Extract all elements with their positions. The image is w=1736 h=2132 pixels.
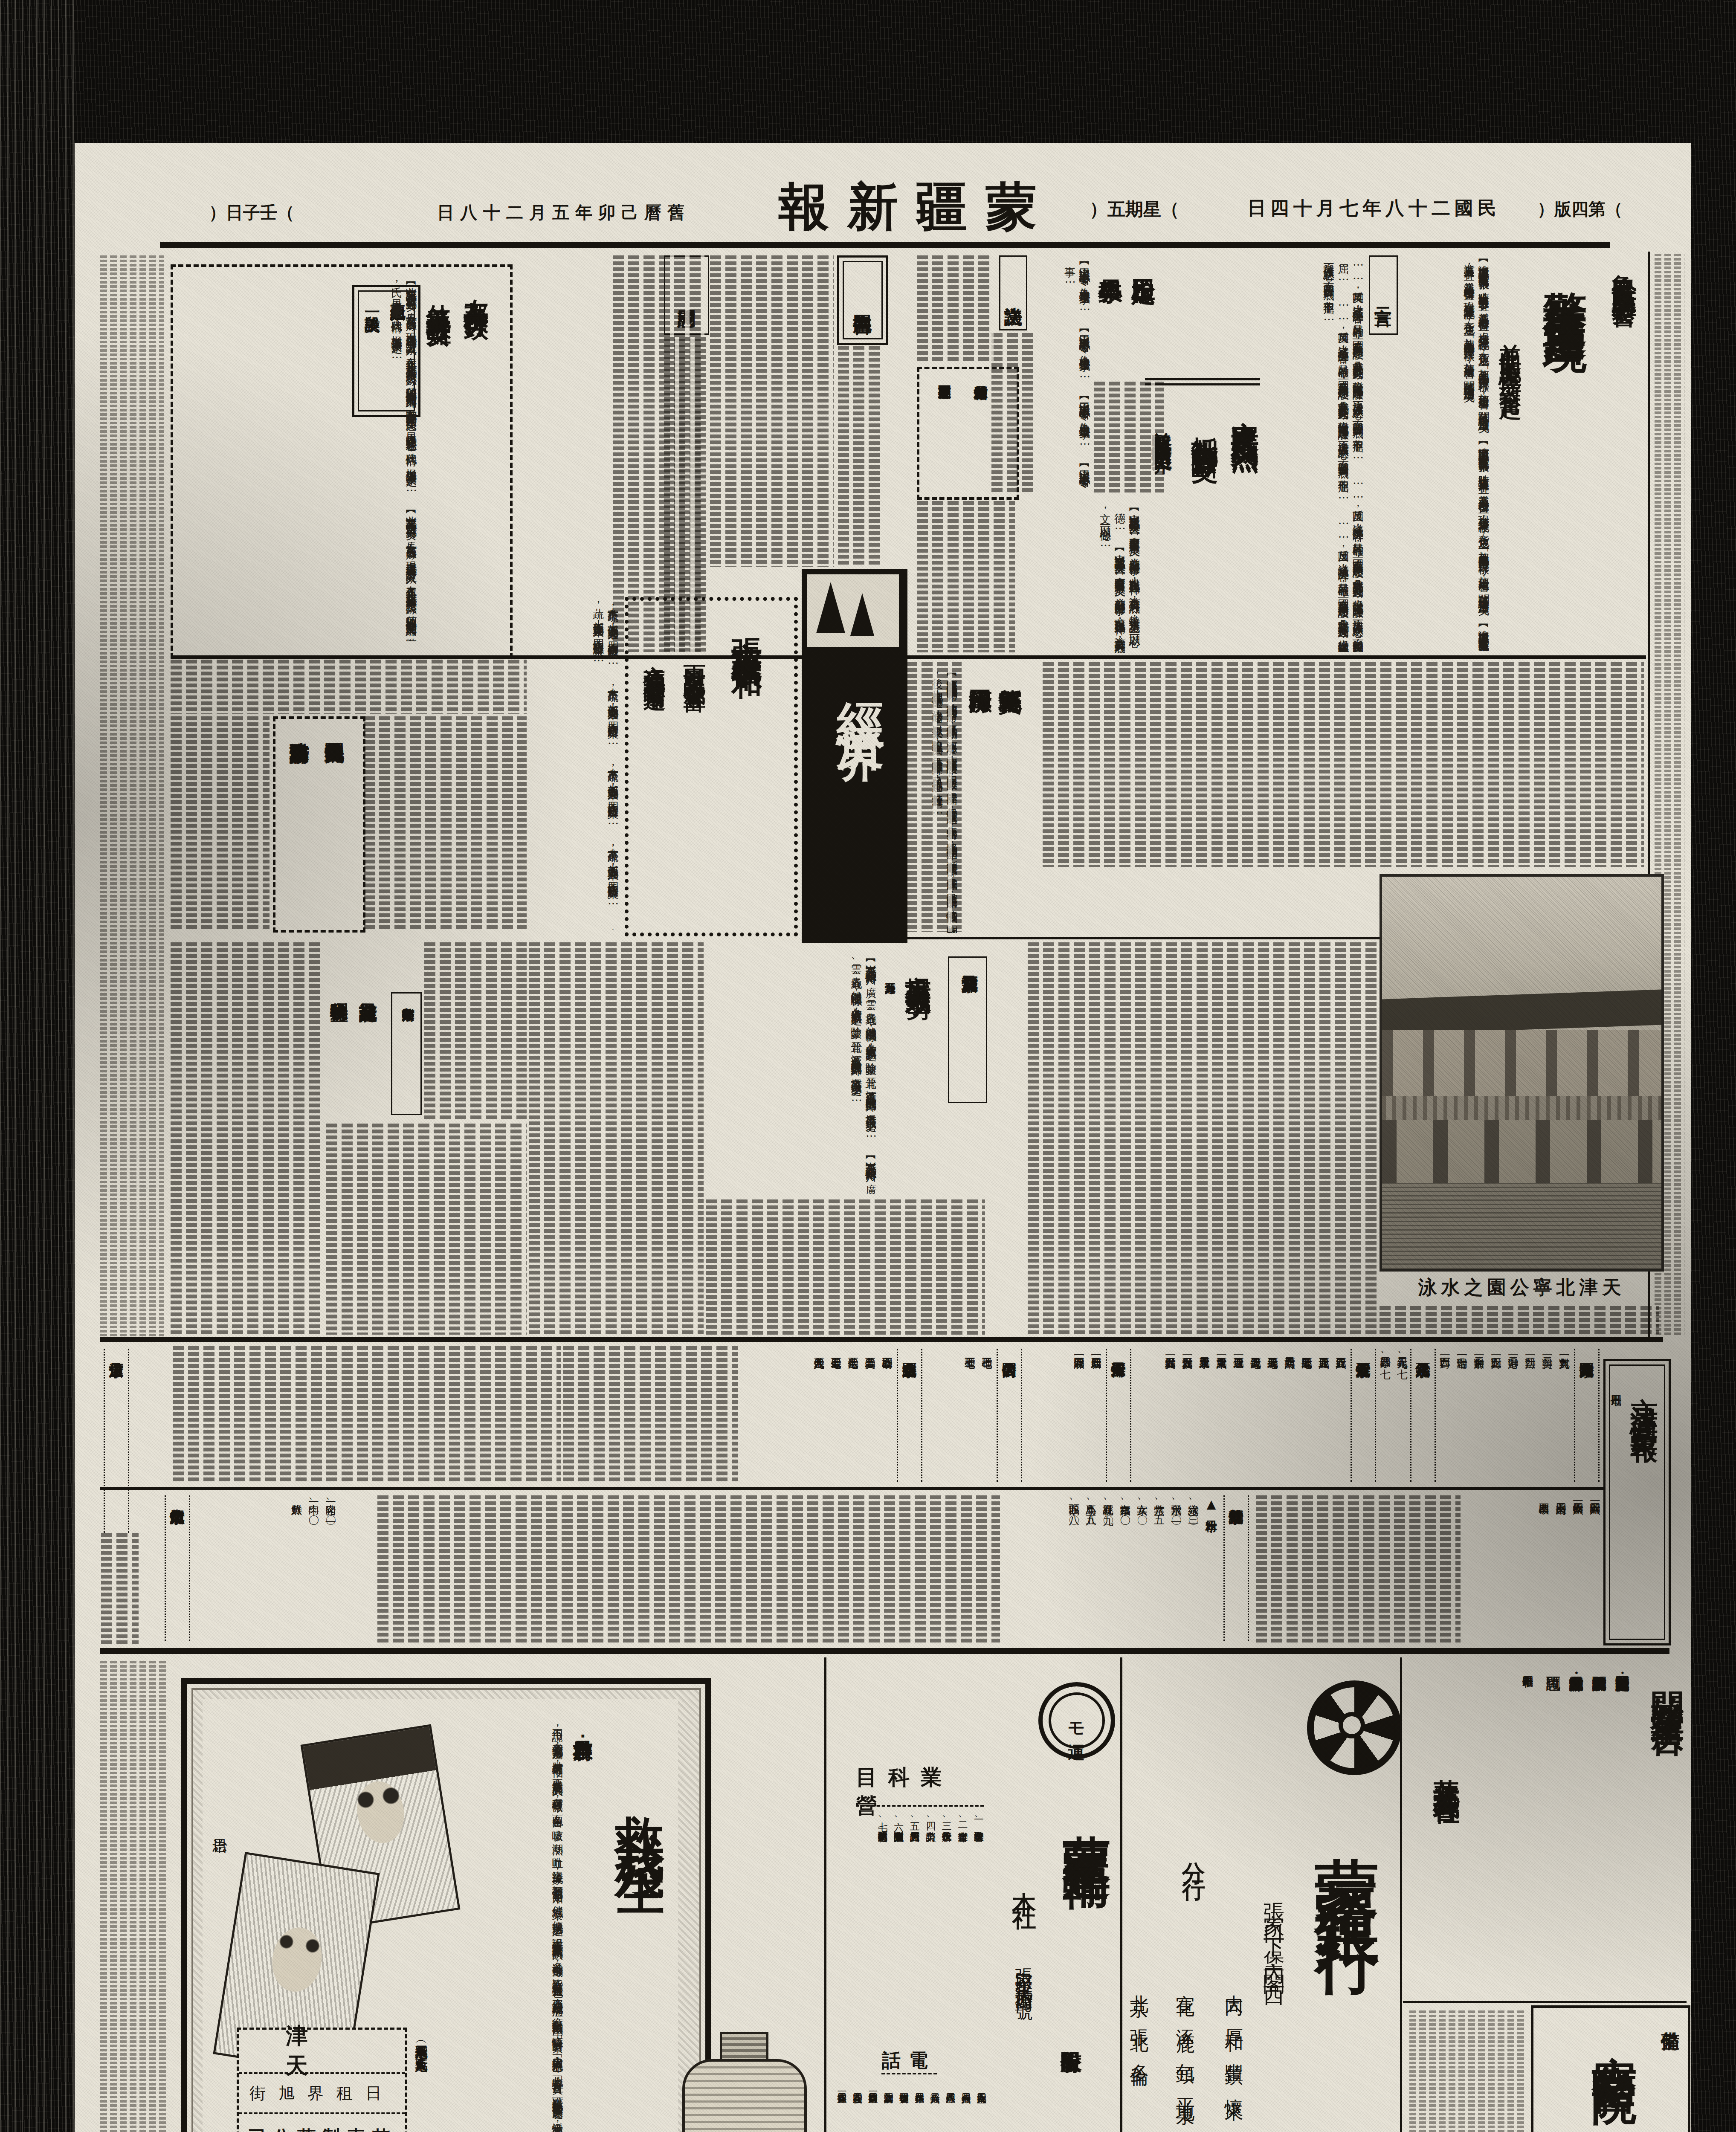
lead-headline: 警告英僑迅速出境 <box>1536 257 1595 654</box>
friendly-article-box: 友邦人士俠行可欽 仗義挺身救出難女 興亞紀念中 一段美談 【北京訊】元者年逾六十… <box>171 264 513 658</box>
phone-row: 發著貨物係三三四四 <box>898 2086 910 2132</box>
hospital-note-1: 整備 <box>1658 2017 1683 2073</box>
fx-row: 對法三〇一 <box>1524 1350 1536 1480</box>
flour-entries: 綠字六、三〇 飛字六、二〇 竹字六、一五 女字六、一〇 白福字六、〇〇 紅桃花五… <box>1063 1496 1200 1640</box>
misc-top-columns-1 <box>917 255 994 362</box>
tax-headline-1: 國稅並無免費先例 <box>322 727 348 919</box>
bj-stocks-title: 北京股票行情 <box>1351 1349 1376 1482</box>
fx-entries: 對英一一九六 對美二〇一 對法三〇一 對港二〇一〇 對比一〇五 對加拿大二一〇 … <box>1434 1350 1571 1480</box>
silver-table: 北京銀元鈔票 銀元二三九、七 鈔票二三四、七 <box>1380 1346 1437 1483</box>
hospital-ad: 整備 各科 察南醫院 郊北府政治自南察 <box>1531 2005 1690 2132</box>
mid-right-columns <box>1043 662 1644 867</box>
zhang-headline-box: 張市菜蔬售價平和 雨量充足收成豐富 交通便利京貨暢運 <box>625 597 798 936</box>
stock-row: 城股票五六元 <box>1317 1350 1330 1480</box>
masthead-cyclical-day: ）日子壬（ <box>209 201 316 224</box>
stock-row: 行股票五六元 <box>1334 1350 1347 1480</box>
business-item: 二、倉庫營業 <box>957 1814 969 2019</box>
tax-headline-box: 國稅並無免費先例 京財政部咨請查辦 <box>273 716 365 933</box>
paper-title: 報新疆蒙 <box>778 173 1068 242</box>
shipping-office-address: 張家口宣化大道街四一號 <box>1012 1954 1036 2132</box>
gold-price-values <box>101 1533 139 1644</box>
tu-headline-box: 涂縣長等相偕赴津 慰問皇軍並聲援反英 <box>917 367 1019 500</box>
fish-entries: 豬肉一、二〇 牛肉一、〇〇 鮮魚八〇 <box>286 1496 337 1640</box>
medicine-ad-box: 救我殘生 肺癆救星： 不用說，我們大家都知道，肺病是何等可怕，要知道患肺癆的人，… <box>181 1678 711 2132</box>
shipping-name-mid: 股份有限 <box>1057 2035 1086 2095</box>
bj-stocks-entries: 行股票五六元 城股票五六元 陸股票五七元 南股票六二元 絲股票五七元 鐵股票七九… <box>1159 1350 1347 1480</box>
transport-ad-line-1: 茲自七月三日起開始隴海路阿湖・新安間之旅客 <box>1613 1665 1632 1998</box>
commerce-label-box: 京津商象繁榮 <box>391 992 422 1115</box>
phone-row: 夜間宿直二八四〇 <box>852 2086 863 2132</box>
tu-headline-1: 涂縣長等相偕赴津 <box>971 375 990 490</box>
bank-branches-2: 宣化 涿鹿 包頭 平地泉 <box>1173 1980 1198 2132</box>
business-item: 四、勞力請負 <box>925 1814 937 2019</box>
fx-row: 對巴西三三一 <box>1438 1350 1451 1480</box>
fx-row: 對加拿大二一〇 <box>1472 1350 1485 1480</box>
bank-logo-core <box>1339 1712 1365 1738</box>
fx-table-title: 京津外國匯兌 <box>1574 1349 1600 1482</box>
yutian-headline-1: 玉田檢定 <box>1128 261 1160 371</box>
phone-row: 業務係二八四四 <box>914 2086 925 2132</box>
shipping-phone-header: 話電 <box>881 2048 937 2074</box>
transport-ad: 開始營業廣告 茲自七月三日起開始隴海路阿湖・新安間之旅客 行李包裹及貨物運送營業… <box>1403 1656 1687 2001</box>
letter-body-3 <box>838 346 884 565</box>
friendly-body: 【北京訊】元者年逾六十一歲行二男三女，長女次女各已出嫁，現在老夫婦與二男二女計一… <box>180 278 419 641</box>
bottom-left-margin-text <box>100 1661 168 2132</box>
flour-row: 白福字六、〇〇 <box>1119 1496 1131 1640</box>
stock-row: 鐵股票七九元 <box>1249 1350 1262 1480</box>
economy-box-title: 經濟界 <box>829 665 893 921</box>
letter-label: 告同胞書 <box>837 255 888 345</box>
bullion-row: 破票四兩三 <box>1537 1495 1550 1642</box>
ads-divider-2 <box>1120 1657 1122 2132</box>
market-band-top-rule <box>100 1337 1663 1342</box>
pine-tree-icon <box>816 582 845 633</box>
bullion-row: 收盤二兩一四六 <box>1571 1495 1584 1642</box>
baodi-headline-2: 箭桿河險工 <box>965 672 996 812</box>
hospital-ad-side-text <box>1409 2010 1524 2132</box>
flour-title: 北京麵粉行情 <box>1223 1495 1249 1641</box>
medicine-body: 不用說，我們大家都知道，肺病是何等可怕，要知道患肺癆的人，有種種徵微，面色蒼白，… <box>450 1721 565 2132</box>
bank-branch-label: 分行 <box>1178 1843 1209 1937</box>
bottle-body <box>682 2059 807 2132</box>
transport-ad-line-2: 行李包裹及貨物運送營業關於詳細請向本社 <box>1590 1665 1609 1998</box>
gold-row: 金磅四五五〇 <box>881 1350 893 1480</box>
gold-row: 俄金票六九六〇 <box>812 1350 825 1480</box>
hospital-name: 察南醫院 <box>1585 2019 1646 2132</box>
photo-grain <box>1382 877 1661 1269</box>
fish-meat-title: 北京魚肉行情 <box>165 1495 190 1641</box>
stock-row: 陸股票五七元 <box>1300 1350 1313 1480</box>
phone-row: 支配人室二九四〇 <box>976 2086 987 2132</box>
newspaper-page: ）版四第（ 日四十月七年八十二國民 ）五期星（ 報新疆蒙 日八十二月五年卯己曆舊… <box>75 143 1691 2132</box>
fx-table: 京津外國匯兌 對英一一九六 對美二〇一 對法三〇一 對港二〇一〇 對比一〇五 對… <box>1439 1346 1601 1483</box>
tj-stocks-table: 天津股票行情 啟新股票一一〇元 開灤股票一三一元 <box>1026 1346 1133 1483</box>
gold-row: 日金票七五〇 <box>829 1350 842 1480</box>
flour-row: 飛字六、二〇 <box>1170 1496 1182 1640</box>
silver-table-title: 北京銀元鈔票 <box>1410 1349 1436 1482</box>
below-photo-text <box>1380 1306 1659 1335</box>
pine-tree-icon <box>850 593 874 636</box>
commerce-body-2 <box>326 1124 527 1335</box>
tj-stocks-title: 天津股票行情 <box>1106 1349 1131 1482</box>
silver-row: 鈔票二三四、七 <box>1379 1350 1391 1480</box>
resolution-label: 決議文 <box>999 255 1027 330</box>
market-band-bottom-rule <box>100 1648 1669 1654</box>
flour-row: 小鳥五、八五 <box>1084 1496 1097 1640</box>
gold-notes-table: 北京各國金票 金磅四五五〇 美金票五〇〇 法金票七三〇 日金票七五〇 俄金票六九… <box>741 1346 924 1483</box>
commerce-label: 京津商象繁榮 <box>399 998 417 1109</box>
anci-headline-1: 安次民眾反英熱烈 <box>1226 399 1264 655</box>
bonds-title: 中國國內公債 <box>997 1349 1022 1482</box>
misc-body-continued <box>706 1199 985 1335</box>
declaration-body: ……反英國，遂結成了反英陣容，其目的確立，國家東亞新秩序的建設，凡我東亞民眾反英… <box>1266 255 1365 652</box>
fx-row: 對美二〇一 <box>1541 1350 1553 1480</box>
shipping-business-items: 一、運送及運送取扱營業 二、倉庫營業 三、代辦及保管行李 四、勞力請負 五、需品… <box>854 1814 985 2019</box>
tu-headline-2: 慰問皇軍並聲援反英 <box>936 375 953 490</box>
business-item: 六、金融通融直接運送關係貨物資買賣 <box>893 1814 904 2019</box>
flour-subtitle: ▲日本粉 <box>1203 1497 1219 1604</box>
photo-caption: 泳水之園公寧北津天 <box>1380 1272 1664 1303</box>
stock-row: 緞支付券一〇〇五元 <box>1164 1350 1177 1480</box>
bond-row: 乙種七三〇 <box>980 1350 993 1480</box>
market-band-mid-rule <box>100 1487 1606 1490</box>
transport-ad-line-3: 部旅客課・貨物課・最近鐵路局營業處或最近站 <box>1567 1665 1586 1998</box>
flour-row: 紅桃花五、九〇 <box>1101 1496 1114 1640</box>
phone-row: 街間扱乘直二八四一 <box>867 2086 878 2132</box>
transport-ad-line-4: 訊問可也 <box>1544 1665 1563 1836</box>
lead-kicker: 魯全民反英防共委會 <box>1608 255 1641 536</box>
zhang-body: 本市菜蔬，大部係由北京運來，四季均有應時鮮菜…… 本市菜蔬，大部係由北京運來，四… <box>529 599 620 930</box>
scan-left-scratches <box>0 0 75 2132</box>
stock-row: 東股票六一元 <box>1215 1350 1228 1480</box>
bullion-entries: 開盤二兩一三六 收盤二兩一四六 出來高二四兩〇二 破票四兩三 <box>1469 1495 1601 1642</box>
newspaper-scan: ）版四第（ 日四十月七年八十二國民 ）五期星（ 報新疆蒙 日八十二月五年卯己曆舊… <box>0 0 1736 2132</box>
commerce-body <box>171 942 324 1335</box>
phone-row: 經理係二八八四 <box>945 2086 956 2132</box>
shipping-name-main: 蒙疆運輸 <box>1055 1796 1120 2035</box>
market-row2-extra-left <box>377 1495 1000 1642</box>
tax-headline-2: 京財政部咨請查辦 <box>287 727 313 919</box>
shipping-ad: モ運 蒙疆運輸 股份有限 公司 本社 張家口宣化大道街四一號 電略マル 目科業營… <box>826 1656 1120 2132</box>
bank-name: 蒙疆銀行 <box>1305 1806 1391 2132</box>
phone-row: 當直搬運係一二八四 <box>836 2086 847 2132</box>
flour-row: 鵝頭五、八〇 <box>1067 1496 1080 1640</box>
bj-stocks-table: 北京股票行情 行股票五六元 城股票五六元 陸股票五七元 南股票六二元 絲股票五七… <box>1136 1346 1378 1483</box>
stock-row: 漢支付券一〇五元 <box>1181 1350 1194 1480</box>
fish-meat-table: 豬肉一、二〇 牛肉一、〇〇 鮮魚八〇 北京魚肉行情 <box>162 1493 375 1643</box>
lead-subhead: 並促同胞覺悟一致奮起 <box>1495 326 1525 652</box>
anci-body: 【安次通訊】本縣興亞反英大會，會分區召集民眾一致反英，並分別舉辦週間行事，藉以表… <box>1042 504 1142 653</box>
medicine-signature: 思诒 <box>210 1827 230 1874</box>
flour-row: 綠字六、三〇 <box>1187 1496 1200 1640</box>
friendly-headline-2: 仗義挺身救出難女 <box>422 285 455 524</box>
lead-body: 【濟南通訊】濟全市民眾反英空氣異常緊張，時論促進反英力量事宜，並派員分十組出發宣… <box>1401 255 1491 651</box>
misc-note: 黃葉每斤漲達五角 <box>883 974 898 1111</box>
gold-notes-entries: 金磅四五五〇 美金票五〇〇 法金票七三〇 日金票七五〇 俄金票六九六〇 <box>808 1350 893 1480</box>
zhang-headline: 張市菜蔬售價平和 <box>727 614 768 912</box>
bank-logo-icon <box>1307 1680 1402 1775</box>
bank-branches-3: 北京 張北 多倫 <box>1127 1980 1152 2132</box>
declaration-label: 宣言二 <box>1369 255 1398 335</box>
maker-city: 津天 <box>239 2030 405 2072</box>
gold-row: 美金票五〇〇 <box>864 1350 876 1480</box>
shipping-office-label: 本社 <box>1009 1873 1041 1941</box>
friendly-headline-1: 友邦人士俠行可欽 <box>460 280 493 519</box>
flour-row: 竹字六、一五 <box>1153 1496 1165 1640</box>
market-row1-extra-2 <box>173 1346 561 1483</box>
tax-body-2 <box>171 716 270 930</box>
yutian-body: 【玉田通訊】本縣公署令，為檢定小學教員事…… 【玉田通訊】本縣公署令，為檢定小學… <box>1042 258 1092 490</box>
commerce-body-3 <box>424 942 527 1121</box>
bank-branches-1: 大同 厚和 豐鎮 懷來 <box>1222 1980 1247 2132</box>
yutian-headline-2: 小學教員 <box>1095 261 1127 371</box>
stock-row: 南股票六二元 <box>1283 1350 1296 1480</box>
business-item: 三、代辦及保管行李 <box>941 1814 953 2019</box>
shipping-logo-text: モ運 <box>1065 1711 1089 1730</box>
misc-body: 【京訊】北京雜貨來源向恃川、廣、雲、貴各地，然以運輸關係，各處貨源漸感缺乏，除蒙… <box>706 955 878 1194</box>
bank-head-office: 張家口下堡內閣西 <box>1260 1886 1289 2132</box>
tj-stocks-entries: 啟新股票一一〇元 開灤股票一三一元 <box>1068 1350 1102 1480</box>
stock-row: 燈股票一五元 <box>1232 1350 1245 1480</box>
silver-row: 銀元二三九、七 <box>1396 1350 1409 1480</box>
shipping-phones: 支配人室二九四〇 庶務係二八六四 經理係二八八四 運輸係二八六八 業務係二八四四… <box>834 2086 987 2132</box>
medicine-bottle-illustration: 若素 <box>669 2032 814 2132</box>
shipping-name-tail: 公司 <box>1055 2095 1120 2132</box>
bullion-row: 出來高二四兩〇二 <box>1554 1495 1567 1642</box>
phone-row: 到著貨物所三三三八 <box>883 2086 894 2132</box>
tax-body-3 <box>364 716 527 930</box>
flour-table: 北京麵粉行情 ▲日本粉 綠字六、三〇 飛字六、二〇 竹字六、一五 女字六、一〇 … <box>1004 1493 1251 1643</box>
misc-label-box: 北京雜貨價又漲 <box>948 956 987 1103</box>
news-photo <box>1380 874 1664 1272</box>
business-item: 一、運送及運送取扱營業 <box>973 1814 985 2019</box>
masthead: ）版四第（ 日四十月七年八十二國民 ）五期星（ 報新疆蒙 日八十二月五年卯己曆舊… <box>75 143 1691 249</box>
bullion-row: 開盤二兩一三六 <box>1588 1495 1601 1642</box>
left-margin-text <box>100 255 164 1336</box>
gold-price-title: 京津足金市價 <box>104 1349 129 1533</box>
masthead-date: 日四十月七年八十二國民 <box>1247 196 1529 221</box>
fish-row: 鮮魚八〇 <box>290 1496 303 1640</box>
mid-columns-2 <box>906 662 962 932</box>
medicine-title: 救我殘生 <box>608 1776 674 2040</box>
business-item: 七、附屬前項之一切業務 <box>877 1814 889 2019</box>
market-report-title: 京津商情彙報 <box>1626 1376 1663 1631</box>
yutian-body-continued <box>1094 382 1164 492</box>
gold-notes-title: 北京各國金票 <box>897 1349 922 1482</box>
bond-row: 丁種七五〇 <box>963 1350 976 1480</box>
bonds-table: 中國國內公債 乙種七三〇 丁種七五〇 <box>927 1346 1024 1483</box>
masthead-edition: ）版四第（ <box>1537 197 1640 221</box>
section-rule-1 <box>171 655 1646 659</box>
transport-ad-date: 昭和十四年七月十日 <box>1521 1668 1536 1813</box>
misc-headline: 市場呈供不敷求勢 <box>901 955 936 1188</box>
bank-ad: 蒙疆銀行 張家口下堡內閣西 分行 大同 厚和 豐鎮 懷來 宣化 涿鹿 包頭 平地… <box>1123 1656 1399 2132</box>
fx-row: 對英一一九六 <box>1558 1350 1571 1480</box>
shipping-name-column: 蒙疆運輸 股份有限 公司 <box>1048 1796 1112 2132</box>
anci-deco-rule-1 <box>1145 378 1260 380</box>
medicine-ad-inner: 救我殘生 肺癆救星： 不用說，我們大家都知道，肺病是何等可怕，要知道患肺癆的人，… <box>203 1699 678 2132</box>
transport-ad-title: 開始營業廣告 <box>1645 1665 1690 1964</box>
zhang-subhead-1: 雨量充足收成豐富 <box>680 648 710 912</box>
fish-row: 牛肉一、〇〇 <box>307 1496 320 1640</box>
stock-row: 開灤股票一三一元 <box>1072 1350 1085 1480</box>
gold-row: 法金票七三〇 <box>846 1350 859 1480</box>
stock-row: 啟新股票一一〇元 <box>1090 1350 1102 1480</box>
business-item: 五、需品託力保管資買 <box>909 1814 921 2019</box>
phone-row: 運輸係二八六八 <box>929 2086 940 2132</box>
tu-body <box>917 501 1015 652</box>
fx-row: 對港二〇一〇 <box>1507 1350 1519 1480</box>
baodi-headline-1: 寶坻縣修築 <box>995 672 1026 812</box>
medicine-kicker: 肺癆救星： <box>570 1725 597 1904</box>
tax-body <box>171 660 527 714</box>
economy-section-box: 經濟界 <box>802 569 907 943</box>
phone-row: 庶務係二八六四 <box>960 2086 971 2132</box>
letter-body <box>710 255 834 567</box>
market-row2-extra-right <box>1256 1495 1461 1642</box>
masthead-weekday: ）五期星（ <box>1090 197 1209 221</box>
market-report-title-box: 京津商情彙報 七月十四日 <box>1603 1359 1671 1645</box>
mid-band-columns-right <box>1028 942 1377 1335</box>
transport-ad-signature: 華北交通株式會社 <box>1429 1758 1464 1997</box>
medicine-maker-box: 津天 街旭界租日 司公藥製素若 <box>237 2028 407 2132</box>
maker-company: 司公藥製素若 <box>239 2112 405 2132</box>
silver-entries: 銀元二三九、七 鈔票二三四、七 <box>1374 1350 1409 1480</box>
bonds-entries: 乙種七三〇 丁種七五〇 <box>959 1350 993 1480</box>
stock-row: 來水股票二五元 <box>1198 1350 1211 1480</box>
fx-row: 對瑞士一〇一 <box>1455 1350 1468 1480</box>
shipping-business-header: 目科業營 <box>856 1779 984 1807</box>
shipping-logo-icon: モ運 <box>1038 1682 1115 1759</box>
fish-row: 豬肉一、二〇 <box>324 1496 337 1640</box>
market-row1-extra <box>563 1346 738 1483</box>
commerce-headline-2: 稅收特別盛旺 <box>327 989 351 1117</box>
masthead-lunar-date: 日八十二月五年卯己曆舊 <box>437 201 770 224</box>
stock-row: 絲股票五七元 <box>1266 1350 1279 1480</box>
masthead-rule <box>160 242 1610 248</box>
medicine-price: 價目（八十四片小瓶五毛 三百片大瓶一元六毛） <box>412 2036 430 2132</box>
market-report-date: 七月十四日 <box>1609 1387 1624 1515</box>
flour-row: 女字六、一〇 <box>1136 1496 1148 1640</box>
misc-label: 北京雜貨價又漲 <box>959 963 980 1098</box>
fx-row: 對比一〇五 <box>1490 1350 1502 1480</box>
mid-band-columns-left <box>529 942 704 1335</box>
zhang-subhead-2: 交通便利京貨暢運 <box>640 648 669 912</box>
anci-headline-2: 抵制仇貨實行斷交 <box>1187 416 1223 655</box>
right-ad-divider <box>1403 2001 1687 2003</box>
commerce-headline-1: 商業登記註冊 <box>356 989 380 1117</box>
